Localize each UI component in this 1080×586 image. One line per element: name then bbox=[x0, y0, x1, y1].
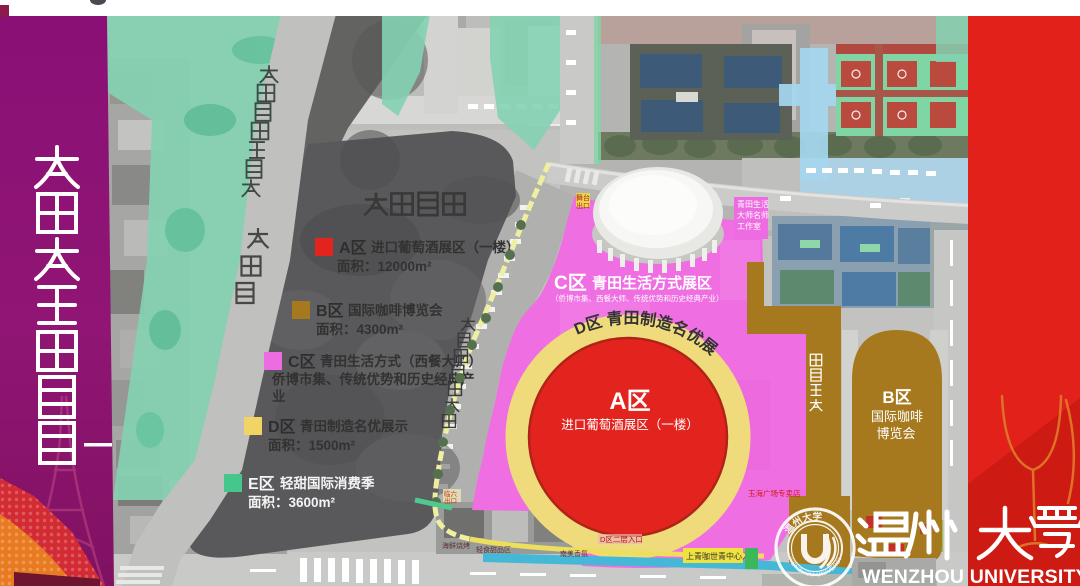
svg-text:玉海广场专卖店: 玉海广场专卖店 bbox=[748, 488, 801, 498]
svg-text:海鲜烧烤: 海鲜烧烤 bbox=[442, 541, 470, 550]
svg-text:业: 业 bbox=[272, 389, 286, 404]
svg-text:南美香氛: 南美香氛 bbox=[560, 549, 588, 558]
svg-text:工作室: 工作室 bbox=[737, 221, 761, 231]
svg-text:国际咖啡: 国际咖啡 bbox=[871, 409, 923, 424]
svg-text:C区: C区 bbox=[554, 273, 587, 294]
svg-text:出口: 出口 bbox=[444, 496, 457, 505]
svg-text:面积：12000m²: 面积：12000m² bbox=[337, 258, 432, 274]
svg-text:大师名师: 大师名师 bbox=[737, 210, 769, 220]
svg-text:青田生活: 青田生活 bbox=[737, 199, 769, 209]
svg-text:E区: E区 bbox=[248, 475, 275, 493]
svg-text:C区: C区 bbox=[288, 353, 316, 371]
svg-text:进口葡萄酒展区（一楼）: 进口葡萄酒展区（一楼） bbox=[371, 239, 520, 255]
svg-text:（侨博市集、西餐大师、传统优势和历史经典产业）: （侨博市集、西餐大师、传统优势和历史经典产业） bbox=[551, 293, 724, 303]
svg-text:青田生活方式展区: 青田生活方式展区 bbox=[592, 274, 712, 292]
svg-text:舞台: 舞台 bbox=[576, 193, 590, 202]
svg-text:面积：4300m²: 面积：4300m² bbox=[316, 321, 404, 337]
svg-text:A区: A区 bbox=[609, 388, 650, 415]
svg-text:B区: B区 bbox=[882, 388, 911, 407]
svg-text:B区: B区 bbox=[316, 302, 344, 320]
svg-text:面积：1500m²: 面积：1500m² bbox=[268, 437, 356, 453]
svg-text:侨博市集、传统优势和历史经典产: 侨博市集、传统优势和历史经典产 bbox=[271, 371, 475, 387]
svg-text:A区: A区 bbox=[339, 239, 367, 257]
svg-text:WENZHOU UNIVERSITY: WENZHOU UNIVERSITY bbox=[862, 566, 1080, 586]
svg-text:轻甜国际消费季: 轻甜国际消费季 bbox=[280, 475, 375, 491]
svg-text:博览会: 博览会 bbox=[876, 426, 915, 441]
svg-text:D区: D区 bbox=[268, 418, 296, 436]
svg-text:出口: 出口 bbox=[576, 201, 590, 210]
svg-text:D区二层入口: D区二层入口 bbox=[600, 535, 643, 544]
svg-text:轻食甜品区: 轻食甜品区 bbox=[476, 545, 511, 554]
svg-text:进口葡萄酒展区（一楼）: 进口葡萄酒展区（一楼） bbox=[561, 417, 699, 432]
svg-text:青田制造名优展示: 青田制造名优展示 bbox=[300, 418, 408, 434]
svg-text:面积：3600m²: 面积：3600m² bbox=[248, 494, 336, 510]
svg-text:临六: 临六 bbox=[444, 489, 458, 498]
svg-text:国际咖啡博览会: 国际咖啡博览会 bbox=[348, 302, 443, 318]
